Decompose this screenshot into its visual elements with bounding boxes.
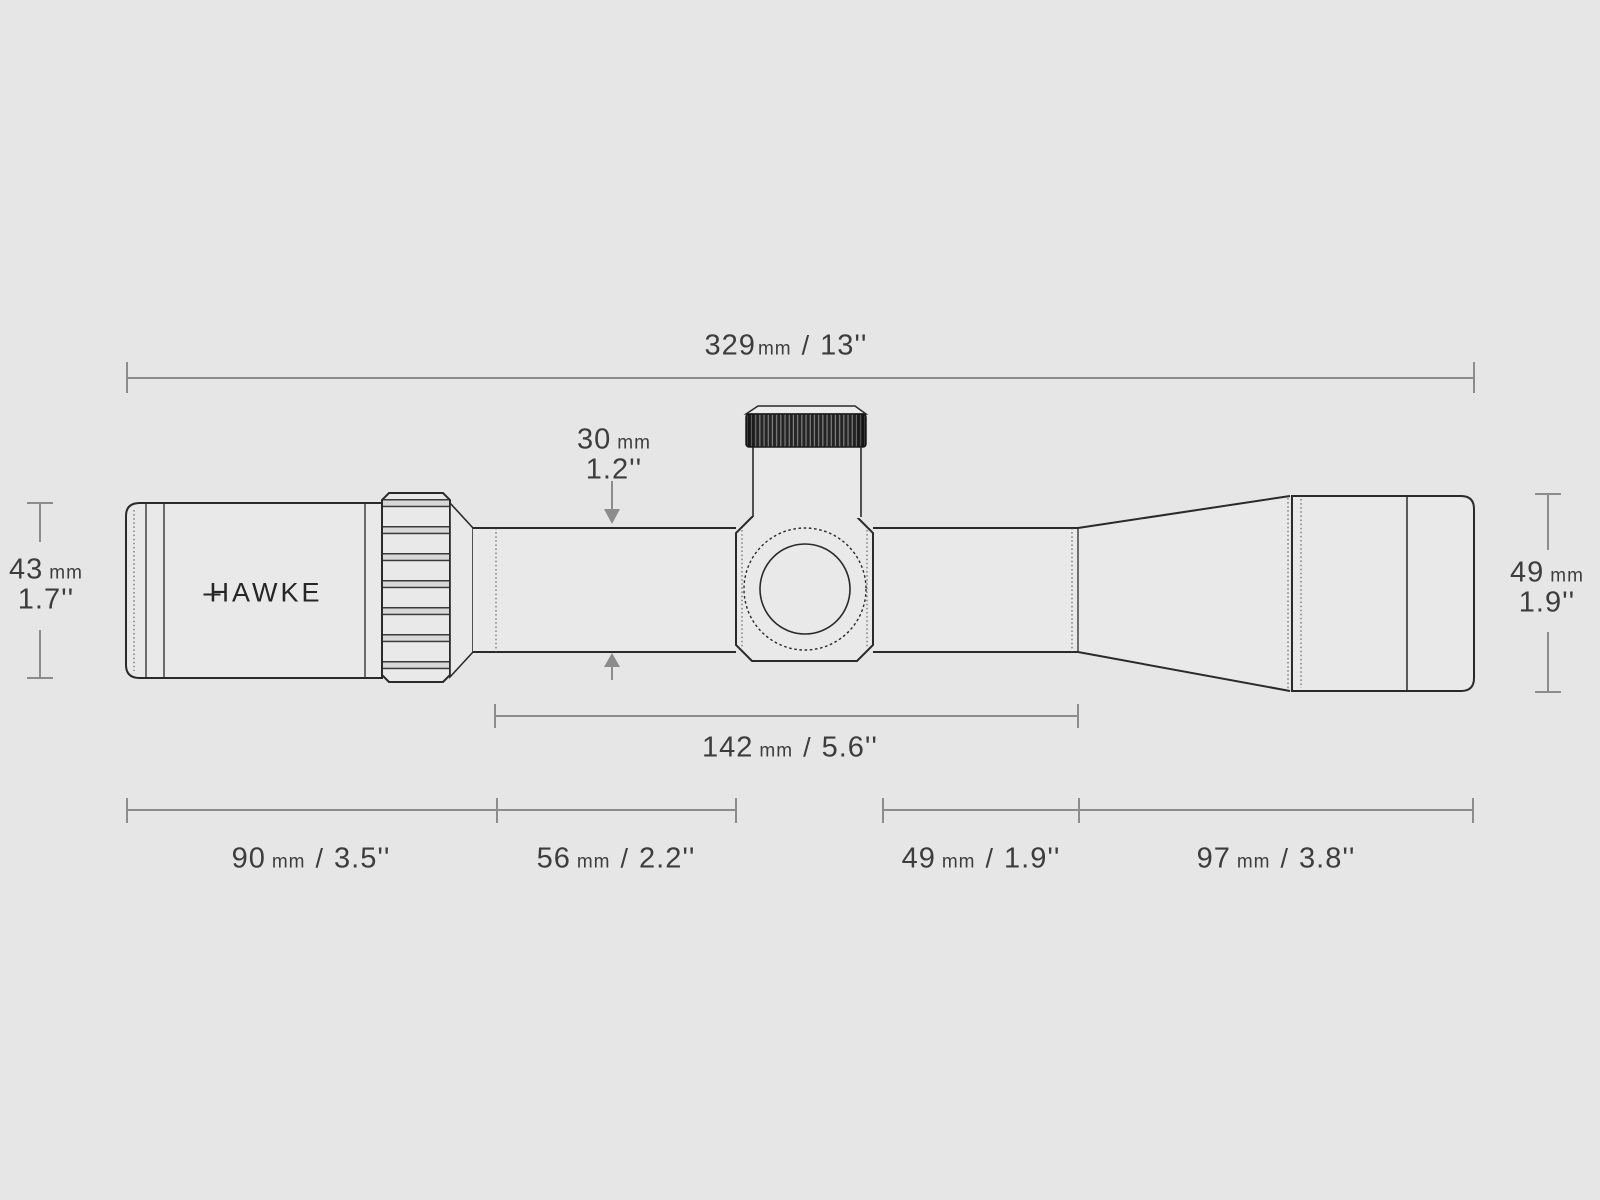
dimension-label-ocular-section: 90mm/3.5'' [232, 845, 391, 874]
objective-bell [1292, 496, 1474, 691]
dim-line-tube-length [495, 704, 1078, 728]
dimension-label-cone-section: 49mm/1.9'' [902, 845, 1061, 874]
turret-cap [746, 406, 866, 447]
dimension-label-objective-diameter: 49mm 1.9'' [1510, 560, 1584, 617]
dimension-label-tube-length: 142mm/5.6'' [702, 734, 878, 763]
ring-to-tube-taper [450, 503, 473, 677]
arrow-down-icon [604, 481, 620, 524]
scope-dimension-diagram: HAWKE 329mm/13'' 30mm 1.2'' 43mm 1.7'' 4… [0, 0, 1600, 1200]
brand-logo: HAWKE [203, 578, 322, 609]
dimension-label-tube-diameter: 30mm 1.2'' [577, 427, 651, 484]
dimension-label-bell-section: 97mm/3.8'' [1197, 845, 1356, 874]
turret-saddle [736, 517, 873, 661]
objective-taper-cone [1078, 496, 1290, 691]
arrow-up-icon [604, 653, 620, 680]
logo-text: HAWKE [209, 578, 322, 608]
main-tube-left [473, 528, 736, 652]
main-tube-right [873, 528, 1078, 652]
turret-stem [753, 446, 861, 518]
dimension-label-ocular-diameter: 43mm 1.7'' [9, 557, 83, 614]
dimension-label-overall: 329mm/13'' [705, 332, 868, 361]
dim-line-bottom-left-group [127, 798, 736, 823]
dim-line-bottom-right-group [883, 798, 1473, 823]
dimension-label-tube-front-section: 56mm/2.2'' [537, 845, 696, 874]
dim-line-overall [127, 362, 1474, 393]
zoom-ring [382, 493, 450, 682]
